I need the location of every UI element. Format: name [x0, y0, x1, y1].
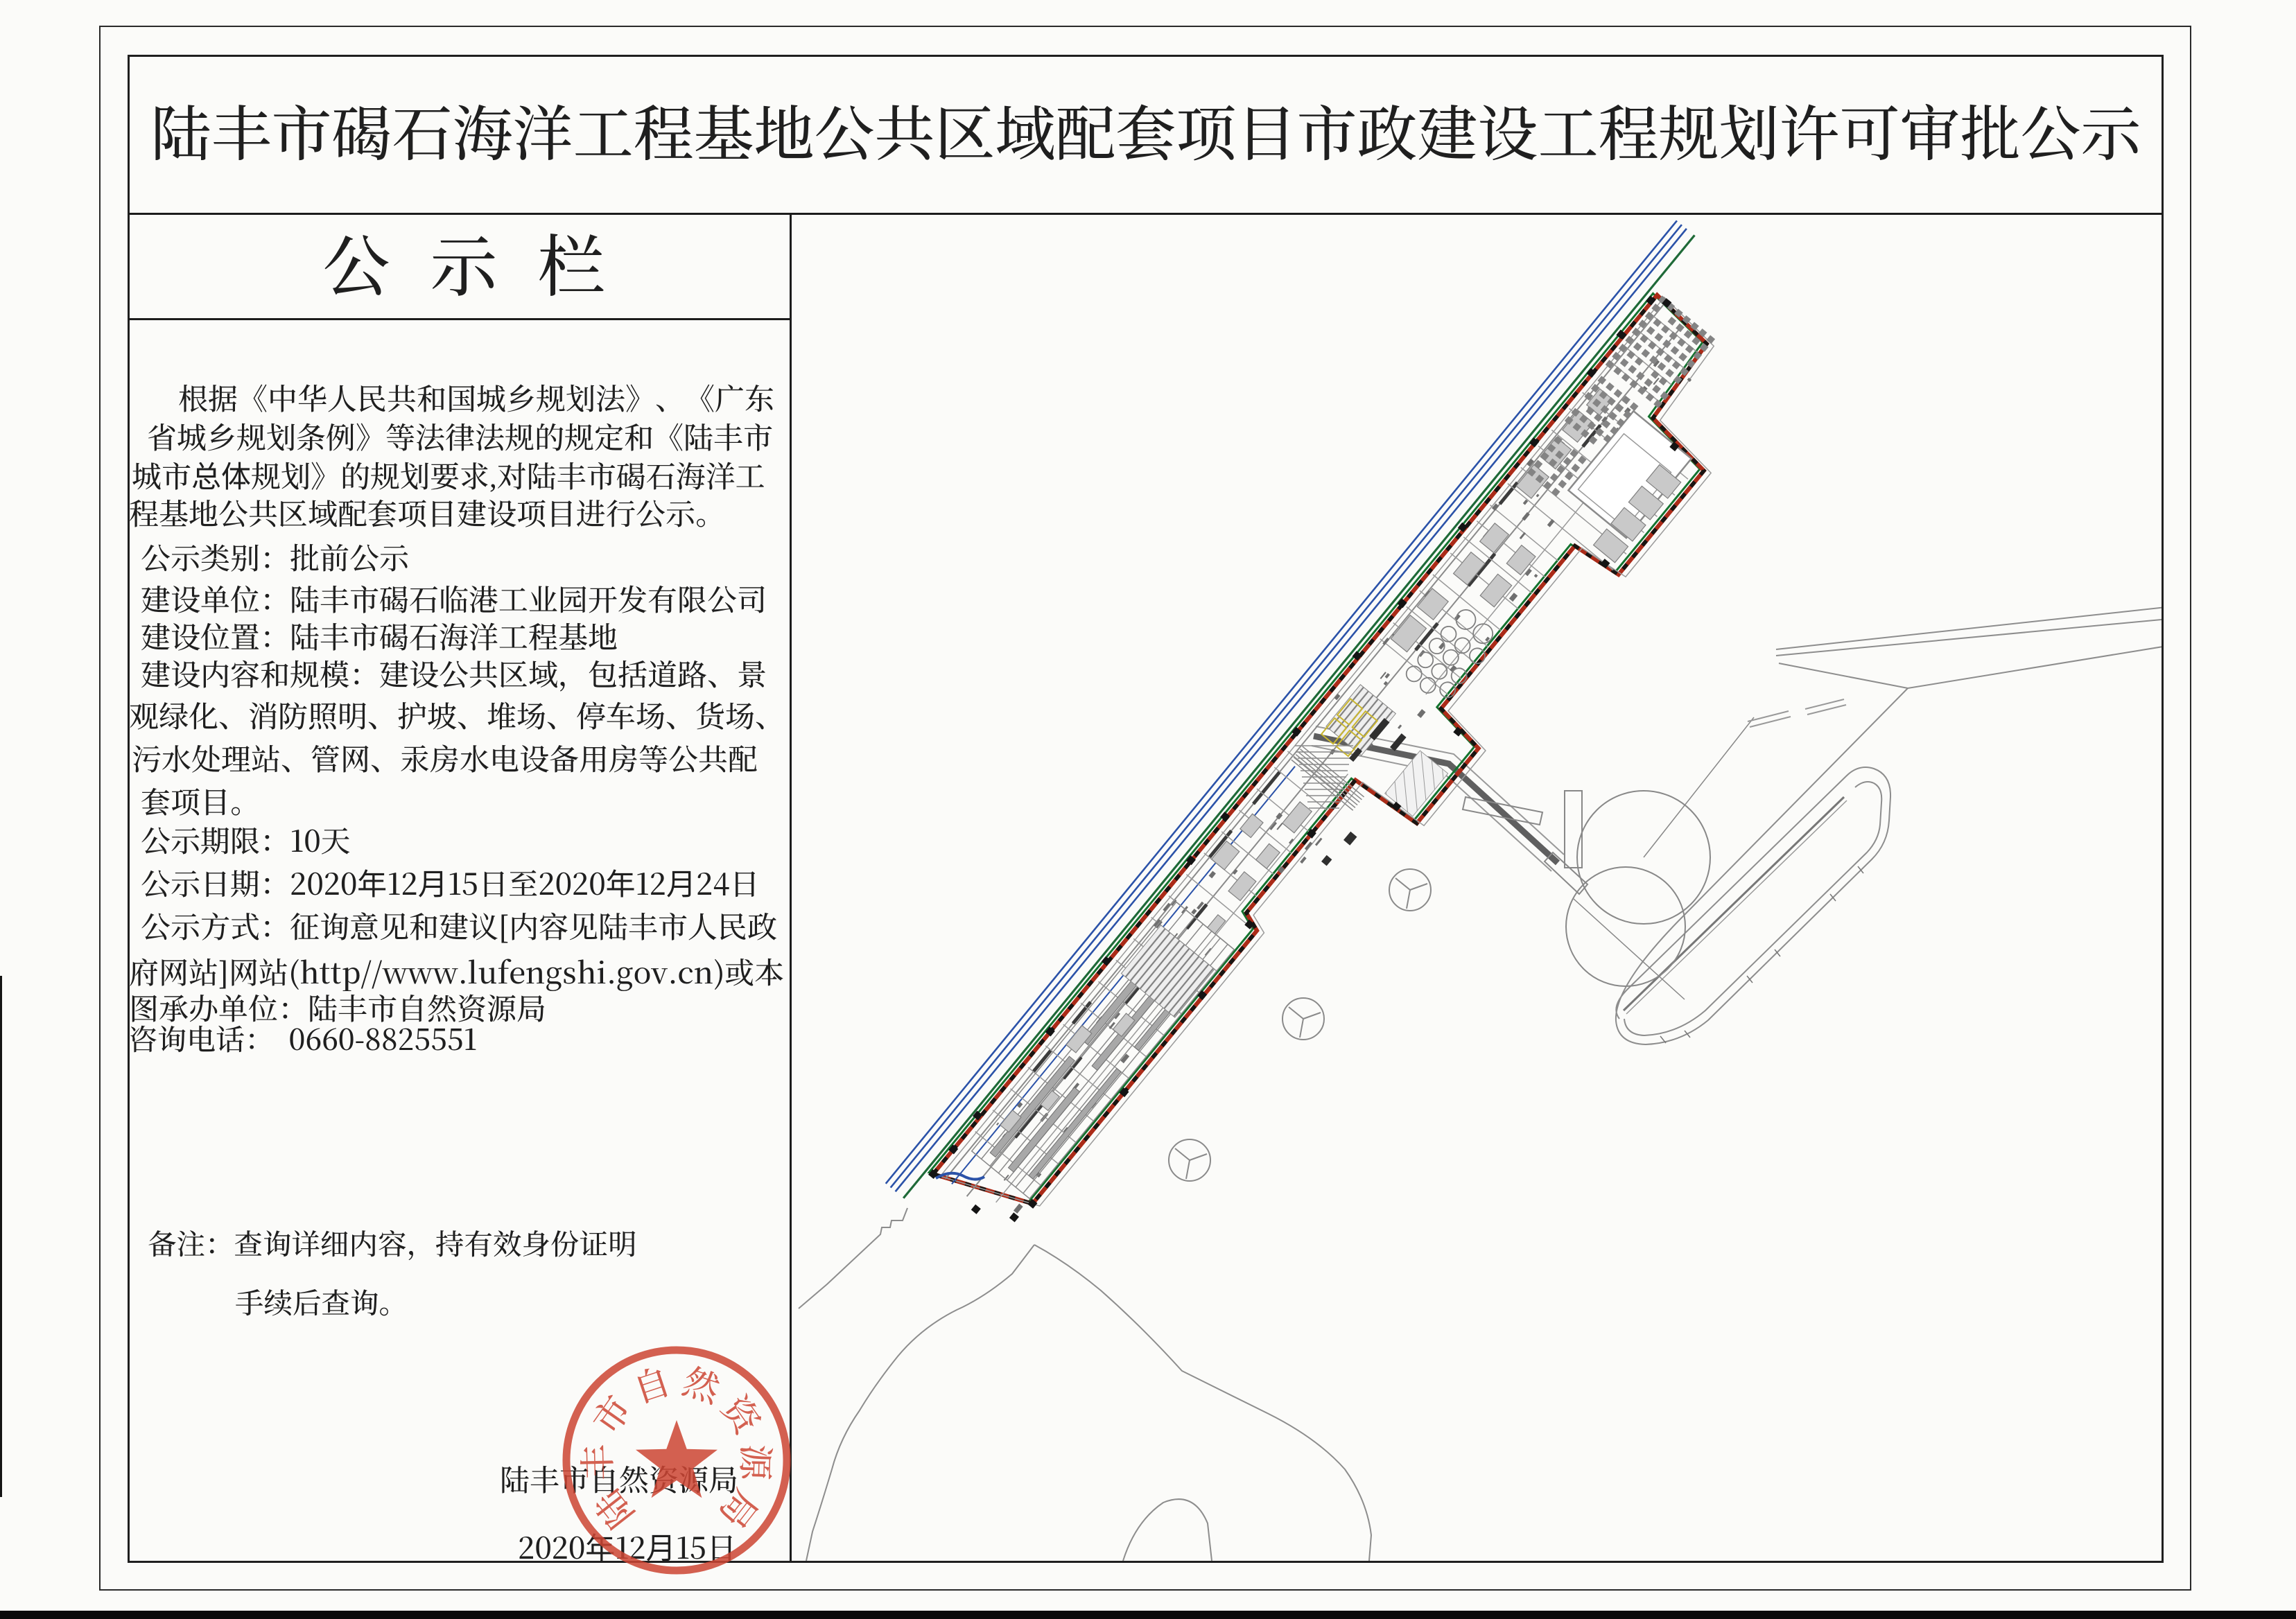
svg-text:丰: 丰 [568, 1444, 621, 1481]
svg-text:然: 然 [677, 1352, 728, 1413]
svg-text:自: 自 [626, 1352, 677, 1413]
svg-text:源: 源 [732, 1444, 785, 1481]
